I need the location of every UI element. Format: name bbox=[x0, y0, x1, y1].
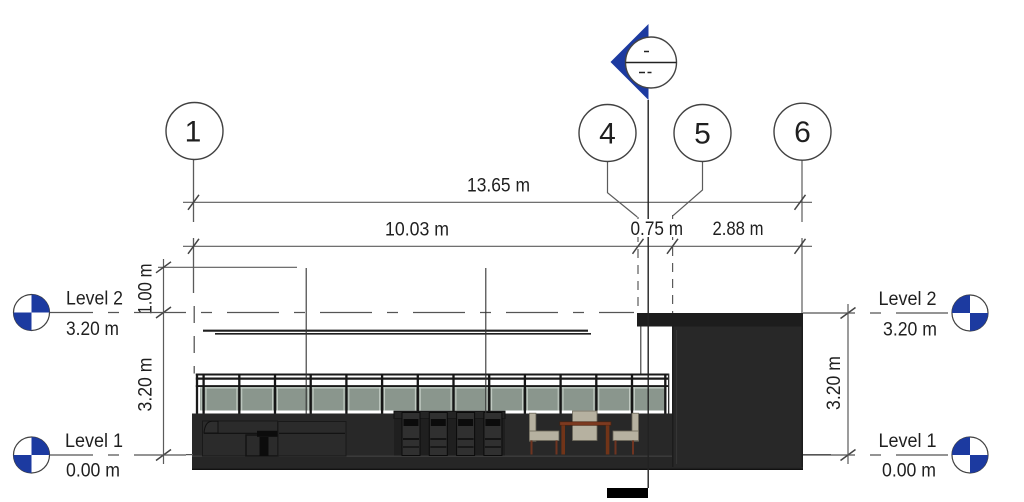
svg-text:Level 1: Level 1 bbox=[879, 431, 937, 452]
svg-text:0.00 m: 0.00 m bbox=[66, 461, 120, 482]
svg-text:4: 4 bbox=[599, 118, 616, 151]
svg-text:0.75 m: 0.75 m bbox=[631, 219, 684, 240]
svg-text:0.00 m: 0.00 m bbox=[882, 461, 936, 482]
svg-text:1: 1 bbox=[185, 116, 202, 149]
svg-text:3.20 m: 3.20 m bbox=[66, 319, 119, 340]
svg-text:3.20 m: 3.20 m bbox=[136, 358, 157, 412]
svg-text:13.65 m: 13.65 m bbox=[467, 176, 530, 197]
svg-text:10.03 m: 10.03 m bbox=[385, 220, 449, 241]
svg-text:Level 2: Level 2 bbox=[66, 289, 123, 310]
svg-text:Level 2: Level 2 bbox=[879, 289, 937, 310]
svg-text:2.88 m: 2.88 m bbox=[713, 219, 764, 240]
svg-text:3.20 m: 3.20 m bbox=[824, 356, 845, 410]
svg-text:5: 5 bbox=[694, 118, 711, 151]
svg-text:3.20 m: 3.20 m bbox=[883, 320, 937, 341]
svg-text:6: 6 bbox=[794, 116, 811, 149]
svg-text:Level 1: Level 1 bbox=[65, 431, 123, 452]
svg-text:1.00 m: 1.00 m bbox=[136, 264, 157, 315]
